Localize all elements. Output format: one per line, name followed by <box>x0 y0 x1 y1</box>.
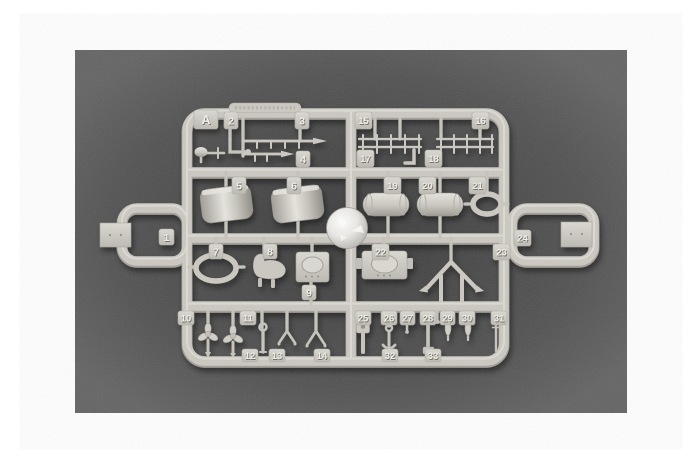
product-photo-canvas: AA22331515161644171718185566191920202121… <box>0 0 700 466</box>
photo-grain-texture <box>75 50 627 413</box>
sprue-photo: AA22331515161644171718185566191920202121… <box>0 0 700 466</box>
